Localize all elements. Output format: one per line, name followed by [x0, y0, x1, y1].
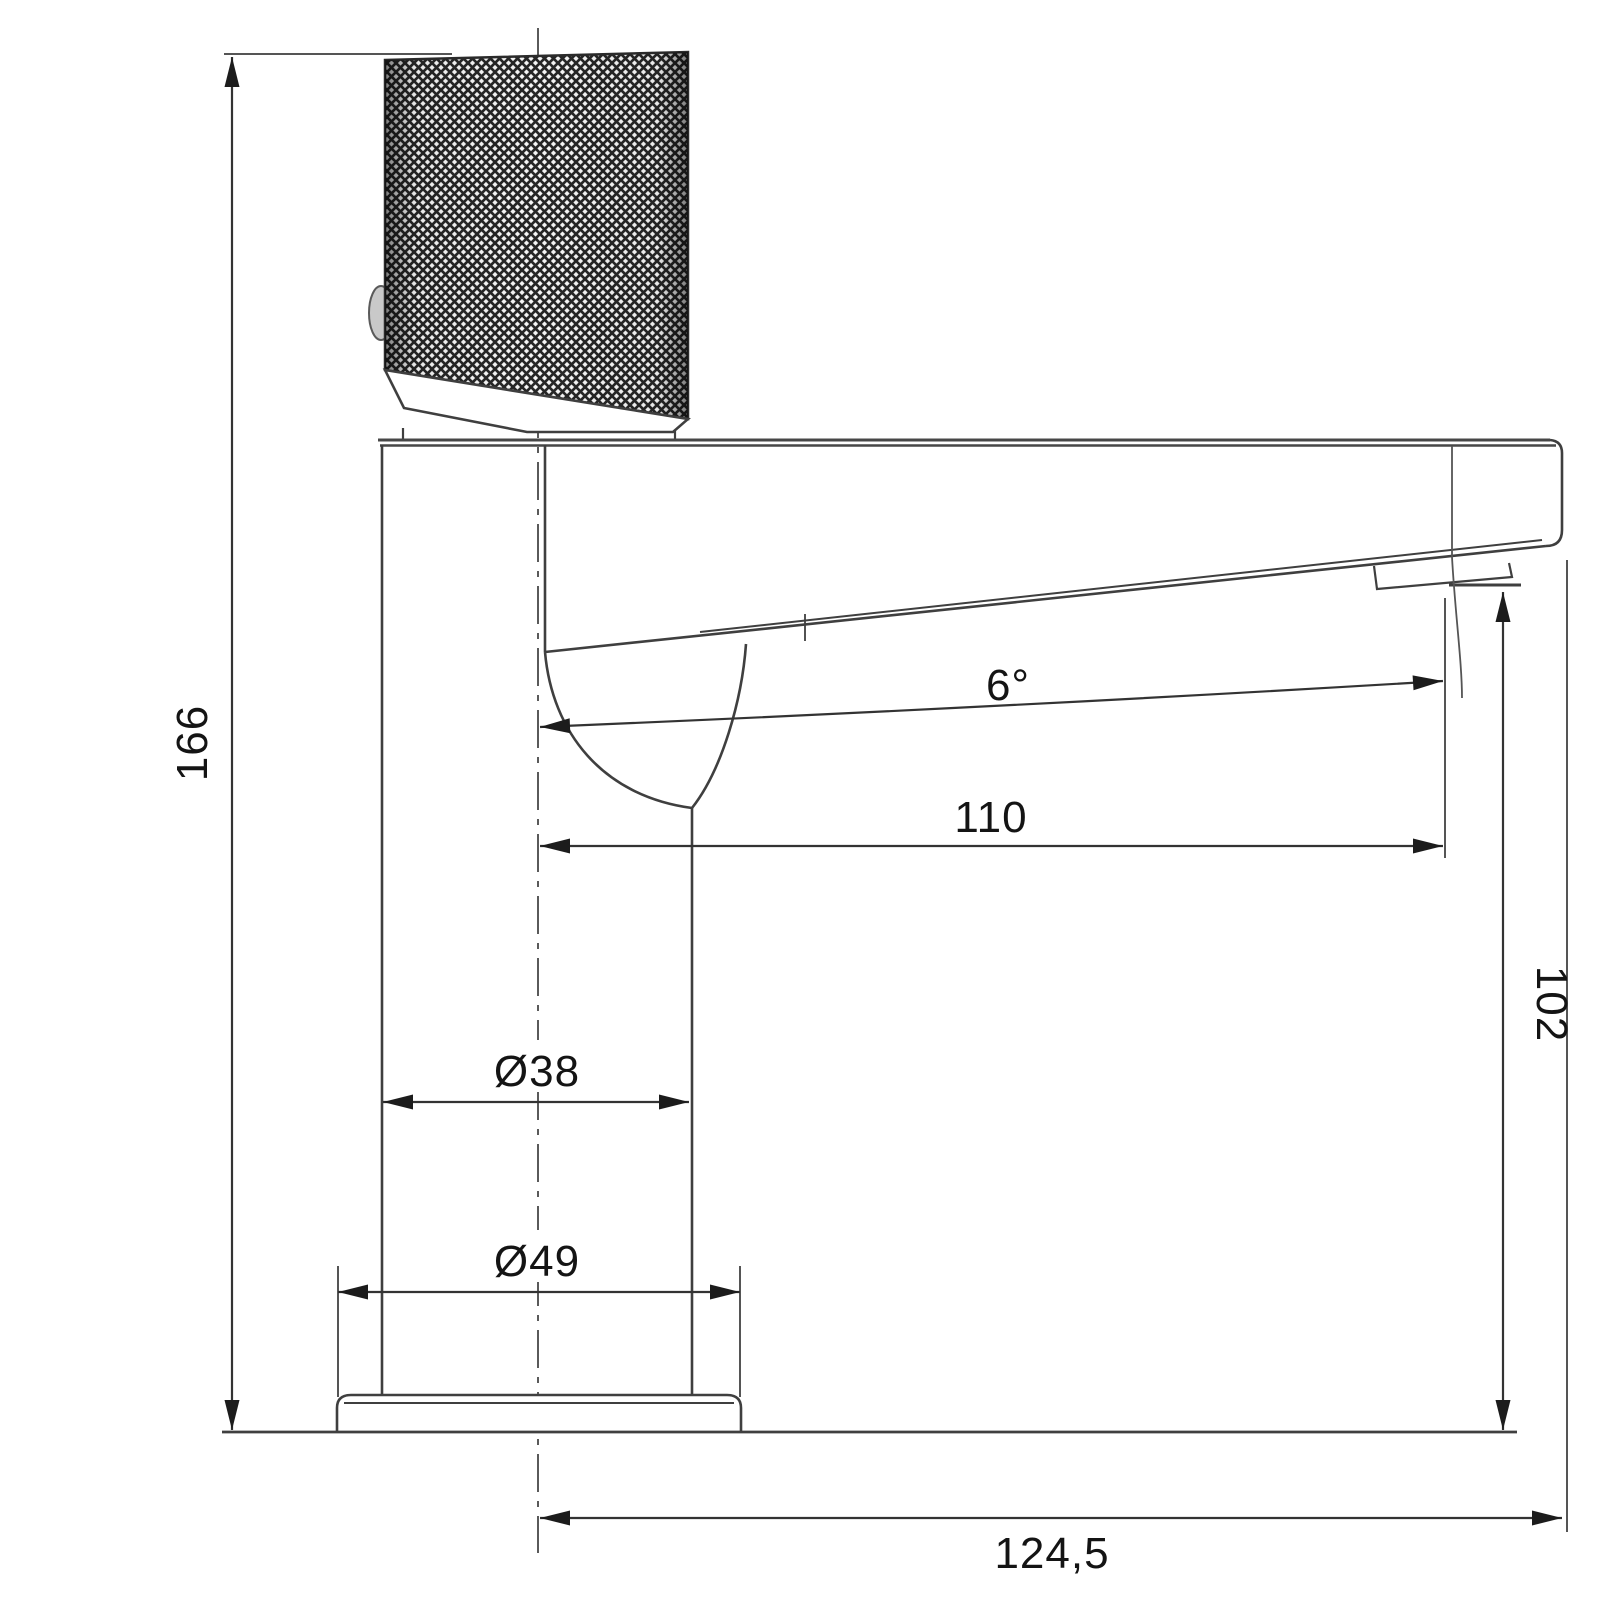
spout	[545, 440, 1562, 808]
aerator	[1374, 563, 1521, 589]
handle-shading	[385, 52, 688, 419]
label-spout-reach: 110	[954, 793, 1027, 842]
knurled-handle	[385, 52, 688, 441]
label-body-diameter: Ø38	[494, 1047, 580, 1096]
base-plate	[337, 1395, 741, 1432]
faucet-dimension-drawing: 166 6° 110 102 Ø38 Ø49 124,5	[0, 0, 1600, 1600]
dimension-labels: 166 6° 110 102 Ø38 Ø49 124,5	[168, 661, 1576, 1578]
label-total-reach: 124,5	[994, 1529, 1109, 1578]
faucet-deck	[378, 440, 1556, 446]
spout-body-fillet-left	[545, 652, 692, 808]
spout-body-fillet-right	[692, 644, 746, 808]
label-total-height: 166	[168, 705, 217, 781]
leader-outlet-curved	[1452, 557, 1462, 698]
label-base-diameter: Ø49	[494, 1237, 580, 1286]
faucet-outline	[337, 52, 1562, 1432]
spout-underside	[545, 546, 1546, 652]
label-spout-angle: 6°	[986, 661, 1030, 710]
spout-tip-edge	[1546, 440, 1562, 546]
technical-drawing-canvas: 166 6° 110 102 Ø38 Ø49 124,5	[0, 0, 1600, 1600]
label-outlet-height: 102	[1527, 966, 1576, 1042]
